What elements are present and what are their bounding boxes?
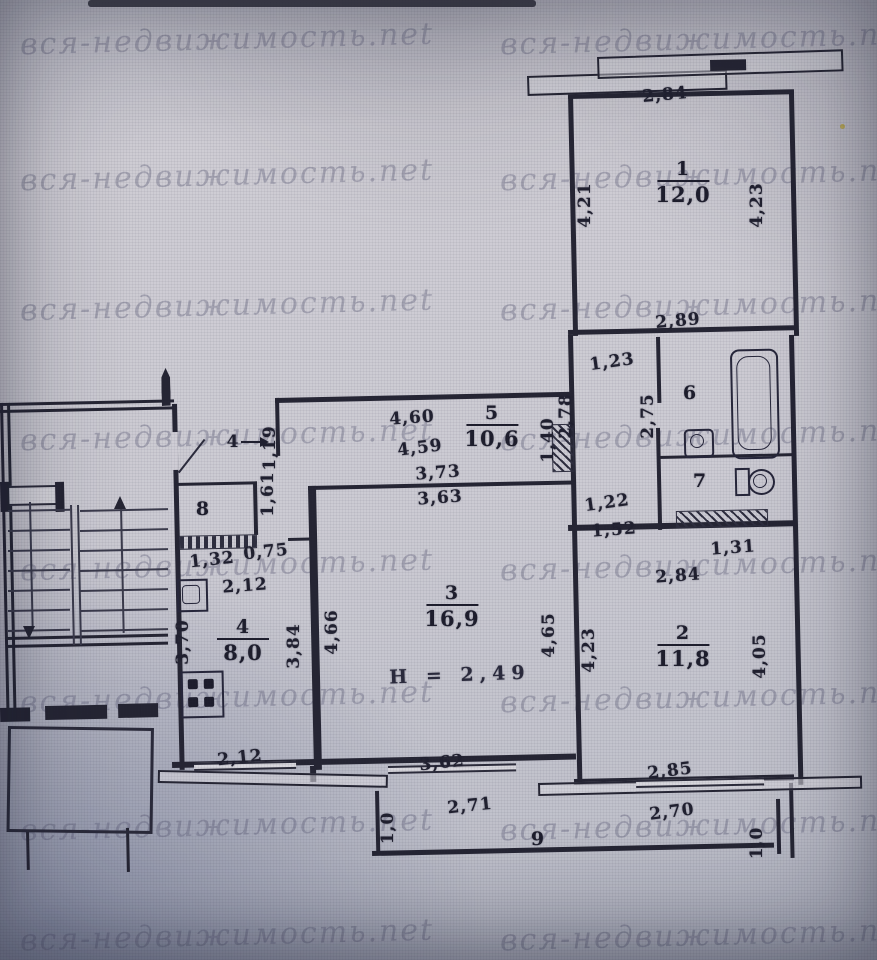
stair-tread	[8, 609, 70, 612]
stair-arrow-down-head	[23, 626, 35, 639]
room-1-label: 1 12,0	[655, 158, 710, 207]
dimension-label: 0,75	[242, 540, 289, 565]
stair-tread	[8, 629, 70, 632]
dimension-label: 4,65	[539, 612, 559, 657]
wall	[26, 830, 30, 870]
window-jamb	[55, 482, 65, 512]
dimension-label: 2,84	[642, 83, 689, 107]
dimension-label: 1,52	[591, 518, 638, 541]
stove-burner	[188, 697, 198, 707]
wall	[372, 843, 774, 856]
balcony-rail-dark-segment	[710, 59, 746, 71]
stair-tread	[8, 529, 70, 532]
floor-plan: Н = 2,49 2,844,214,232,891,232,782,751,2…	[0, 0, 877, 960]
wall	[175, 481, 257, 486]
stairwell-window	[8, 485, 56, 506]
dimension-label: 1,0	[747, 827, 767, 860]
entry-mark-label: 4	[227, 432, 240, 452]
stair-tread	[80, 568, 168, 572]
bathtub-inner	[736, 356, 772, 451]
dimension-label: 1,40	[538, 417, 558, 462]
vent-shaft-hatch	[676, 509, 768, 528]
wall	[0, 406, 174, 413]
dimension-label: 4,60	[389, 406, 436, 429]
dimension-label: 4,59	[396, 435, 444, 460]
dimension-label: 1,32	[188, 548, 235, 573]
dimension-label: 3,73	[415, 461, 462, 484]
room-area: 16,9	[424, 606, 479, 631]
room-area: 8,0	[217, 640, 269, 665]
room-number: 8	[196, 498, 210, 520]
window-jamb	[0, 482, 10, 512]
room-7-label: 7	[693, 470, 707, 492]
dimension-label: 3,70	[173, 619, 193, 664]
stair-tread	[8, 569, 70, 572]
dimension-label: 2,71	[446, 794, 493, 819]
room-number: 7	[693, 470, 707, 492]
wall	[288, 538, 310, 541]
wall	[789, 335, 803, 785]
room-4-label: 4 8,0	[217, 616, 269, 665]
room-6-label: 6	[683, 382, 697, 404]
dimension-label: 1,61	[258, 471, 278, 516]
wall-stub	[161, 368, 171, 406]
stair-tread	[8, 549, 70, 552]
dimension-label: 2,12	[222, 574, 269, 597]
wall	[275, 392, 573, 403]
stair-stringer	[70, 505, 75, 645]
dimension-label: 4,66	[322, 609, 342, 654]
wall	[45, 705, 107, 720]
dimension-label: 2,70	[648, 799, 696, 824]
dimension-label: 2,89	[655, 309, 702, 333]
room-number: 1	[655, 158, 710, 180]
room-number: 3	[424, 582, 479, 604]
wall	[308, 486, 322, 770]
stair-tread	[80, 528, 168, 532]
room-9-label: 9	[531, 828, 545, 850]
wall	[776, 799, 781, 854]
wall	[0, 707, 30, 722]
dimension-label: 4,21	[575, 182, 595, 227]
room-5-label: 5 10,6	[464, 402, 519, 451]
room-number: 5	[464, 402, 519, 424]
stove-burner	[188, 679, 198, 689]
room-2-label: 2 11,8	[655, 622, 710, 671]
dimension-label: 1,23	[588, 349, 636, 375]
dimension-label: 1,19	[260, 425, 280, 470]
dimension-label: 1,0	[378, 812, 398, 845]
dimension-label: 4,23	[747, 182, 767, 227]
room-3-label: 3 16,9	[424, 582, 479, 631]
entry-arrow-icon	[241, 441, 261, 443]
wall	[789, 783, 795, 858]
wall	[118, 703, 158, 718]
entry-door-opening	[172, 432, 179, 470]
kitchen-sink-inner	[182, 585, 200, 604]
room-number: 6	[683, 382, 697, 404]
room-8-label: 8	[196, 498, 210, 520]
dimension-label: 3,84	[284, 623, 304, 668]
balcony-slab	[158, 770, 388, 788]
wall	[789, 94, 799, 336]
wall	[656, 428, 662, 530]
entry-door-leaf	[178, 439, 205, 473]
dimension-label: 2,84	[655, 564, 702, 587]
stair-tread	[8, 589, 70, 592]
stair-arrow-up-head	[114, 496, 126, 509]
room-area: 10,6	[464, 426, 519, 451]
stove-burner	[204, 697, 214, 707]
room-number: 9	[531, 828, 545, 850]
room-area: 12,0	[655, 182, 710, 207]
dimension-label: 2,75	[638, 393, 658, 438]
dimension-label: 3,63	[417, 486, 464, 509]
stove	[181, 671, 225, 719]
dimension-label: 1,22	[583, 490, 631, 516]
stair-stringer	[77, 505, 82, 645]
room-number: 4	[217, 616, 269, 638]
wall	[126, 828, 130, 872]
wall	[0, 399, 174, 406]
stair-tread	[80, 548, 168, 552]
room-number: 2	[655, 622, 710, 644]
dimension-label: 4,23	[579, 627, 599, 672]
room-area: 11,8	[655, 646, 710, 671]
dimension-label: 4,05	[750, 633, 770, 678]
stove-burner	[204, 679, 214, 689]
stair-tread	[80, 588, 168, 592]
dimension-label: 1,31	[710, 536, 757, 559]
entrance-porch	[7, 726, 154, 834]
wall	[6, 642, 168, 648]
scanned-floor-plan-photo: { "watermark": { "text": "вся-недвижимос…	[0, 0, 877, 960]
ceiling-height-note: Н = 2,49	[389, 662, 531, 689]
dimension-label: 2,78	[556, 393, 576, 438]
